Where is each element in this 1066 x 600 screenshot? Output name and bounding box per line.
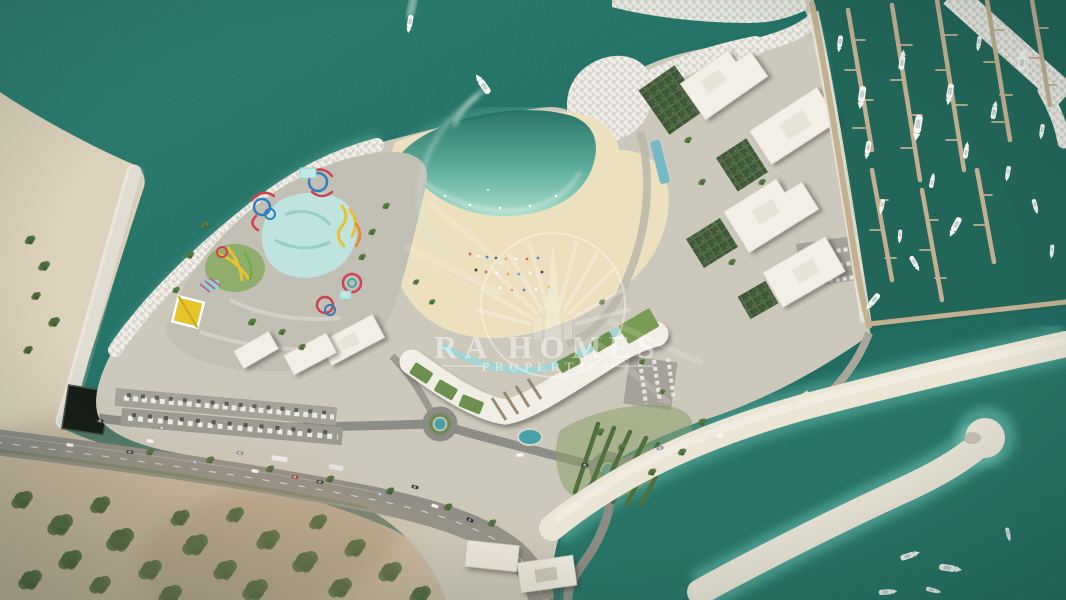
aerial-render: RA HOMES PROPERTIES xyxy=(0,0,1066,600)
watermark-tagline: PROPERTIES xyxy=(482,359,615,374)
atmosphere xyxy=(0,0,1066,600)
